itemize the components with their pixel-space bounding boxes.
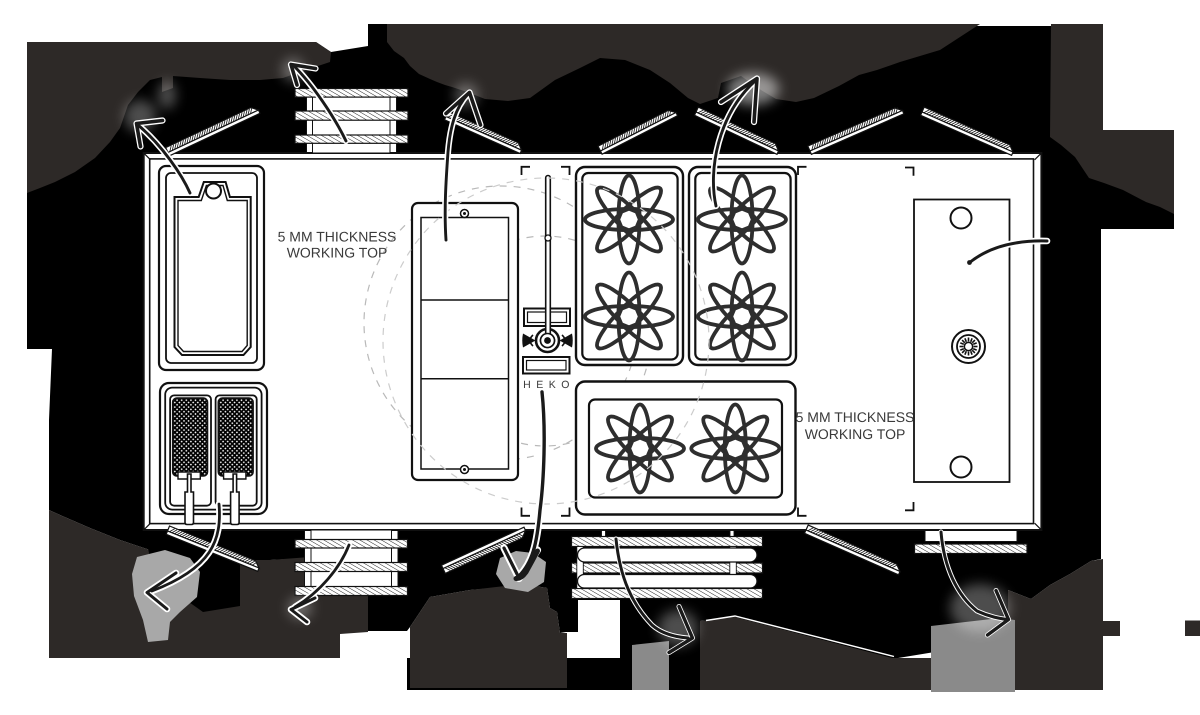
svg-text:WORKING TOP: WORKING TOP (805, 426, 906, 442)
svg-text:HEKO: HEKO (523, 379, 575, 391)
svg-text:WORKING TOP: WORKING TOP (287, 245, 388, 261)
svg-text:5 MM THICKNESS: 5 MM THICKNESS (796, 409, 915, 425)
svg-text:5 MM THICKNESS: 5 MM THICKNESS (278, 229, 397, 245)
